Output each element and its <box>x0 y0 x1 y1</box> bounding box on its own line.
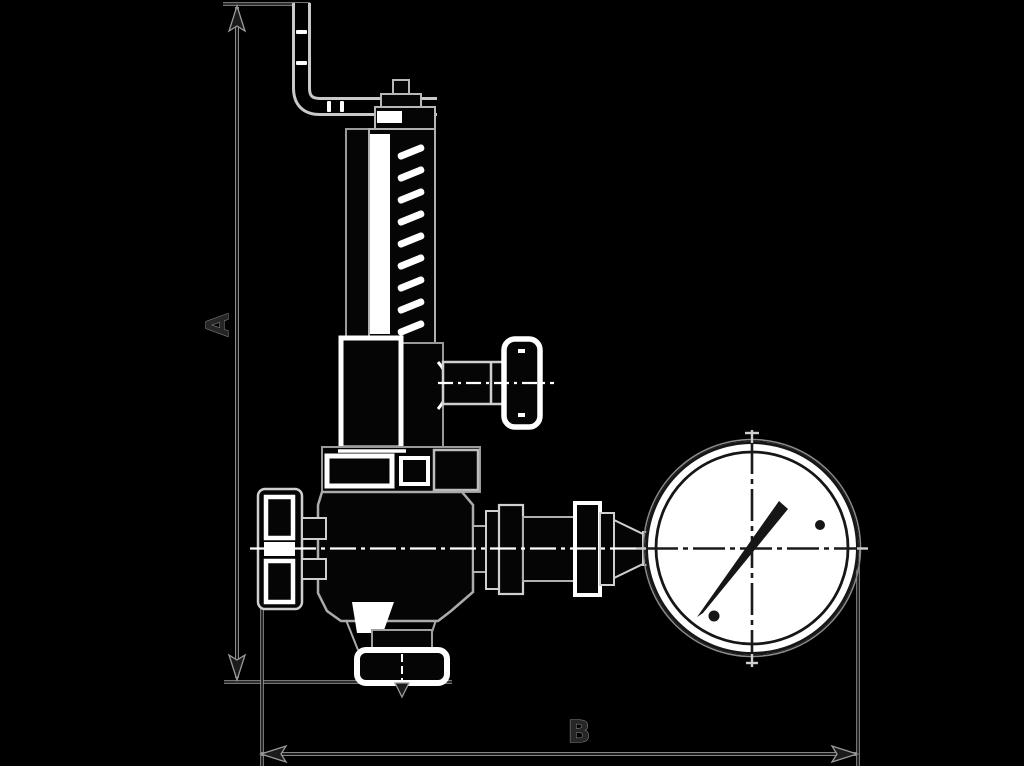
gauge-screw-dot <box>709 611 720 622</box>
lever-knurl-tick <box>296 61 307 65</box>
valve-dimension-figure: A B <box>0 0 1024 766</box>
drawing-canvas: A B <box>0 0 1024 766</box>
coupling-collar <box>486 511 499 589</box>
pressure-gauge <box>636 430 868 667</box>
knob-tick <box>518 349 525 353</box>
lever-knurl-tick <box>327 101 331 112</box>
cap-highlight <box>377 111 402 123</box>
outlet <box>357 630 447 697</box>
upper-flange <box>322 447 480 492</box>
bonnet-ring <box>341 338 401 448</box>
valve-body <box>318 492 473 650</box>
test-knob <box>438 339 554 427</box>
gauge-screw-dot <box>815 520 825 530</box>
handwheel-stem-bottom <box>302 559 326 579</box>
spring-tube-highlight <box>370 134 390 334</box>
knob-tick <box>518 413 525 417</box>
bonnet-right-block <box>401 343 443 448</box>
lever-core <box>302 3 438 107</box>
lever-outline <box>302 3 438 107</box>
body-outline <box>318 492 473 621</box>
lever-knurl-tick <box>296 30 307 34</box>
dimension-a-label: A <box>201 313 236 337</box>
valve-assembly <box>250 3 657 697</box>
bonnet <box>341 338 448 448</box>
flow-arrow-down-icon <box>395 683 409 697</box>
flange-right-block <box>434 450 478 490</box>
body-funnel-highlight <box>352 602 394 633</box>
handwheel-stem-top <box>302 518 326 539</box>
lever-knurl-tick <box>340 101 344 112</box>
dimension-b-label: B <box>568 715 591 750</box>
